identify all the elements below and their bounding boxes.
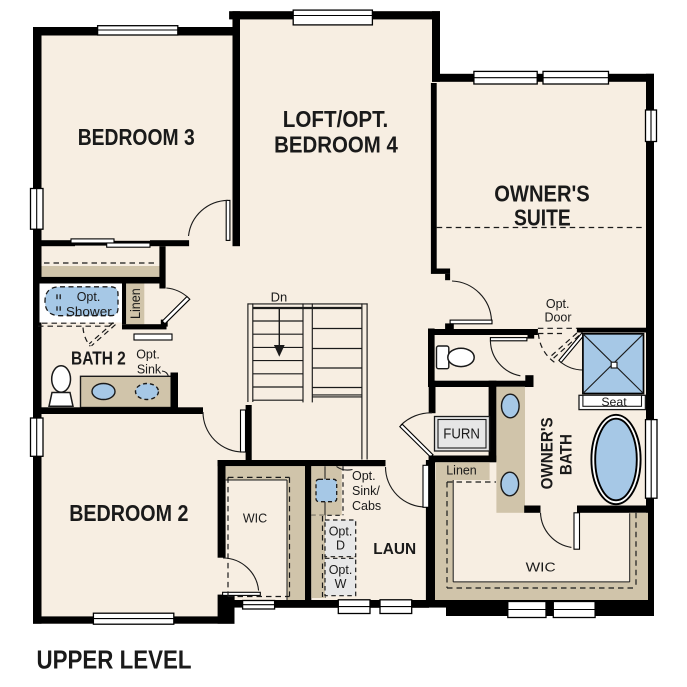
svg-text:D: D (336, 539, 345, 553)
svg-text:Opt.: Opt. (77, 290, 101, 304)
svg-text:BEDROOM 2: BEDROOM 2 (69, 500, 188, 526)
svg-text:Opt.: Opt. (136, 348, 160, 362)
svg-text:FURN: FURN (443, 426, 480, 442)
svg-text:WIC: WIC (526, 560, 556, 575)
svg-text:Opt.: Opt. (329, 525, 353, 539)
svg-text:Cabs: Cabs (352, 499, 381, 513)
svg-text:BEDROOM 4: BEDROOM 4 (274, 131, 398, 157)
svg-text:SUITE: SUITE (514, 205, 571, 231)
svg-text:BEDROOM 3: BEDROOM 3 (78, 124, 195, 150)
svg-text:Linen: Linen (446, 464, 477, 478)
svg-text:UPPER LEVEL: UPPER LEVEL (37, 645, 192, 675)
svg-text:Opt.: Opt. (546, 297, 570, 311)
svg-text:OWNER'S: OWNER'S (537, 417, 556, 489)
svg-text:WIC: WIC (243, 512, 267, 526)
svg-text:BATH: BATH (557, 434, 576, 475)
svg-text:Opt.: Opt. (329, 563, 353, 577)
svg-text:OWNER'S: OWNER'S (494, 181, 590, 207)
svg-text:W: W (335, 577, 347, 591)
svg-text:Door: Door (544, 311, 571, 325)
svg-text:Dn: Dn (271, 289, 288, 304)
svg-text:LAUN: LAUN (373, 541, 416, 558)
svg-text:BATH 2: BATH 2 (71, 349, 126, 369)
svg-text:Shower: Shower (66, 305, 112, 319)
svg-text:Opt.: Opt. (352, 469, 376, 483)
svg-text:Sink/: Sink/ (352, 484, 380, 498)
svg-text:Sink: Sink (137, 363, 162, 377)
svg-text:Linen: Linen (128, 288, 143, 319)
svg-text:Seat: Seat (601, 395, 627, 409)
svg-text:LOFT/OPT.: LOFT/OPT. (283, 106, 388, 132)
